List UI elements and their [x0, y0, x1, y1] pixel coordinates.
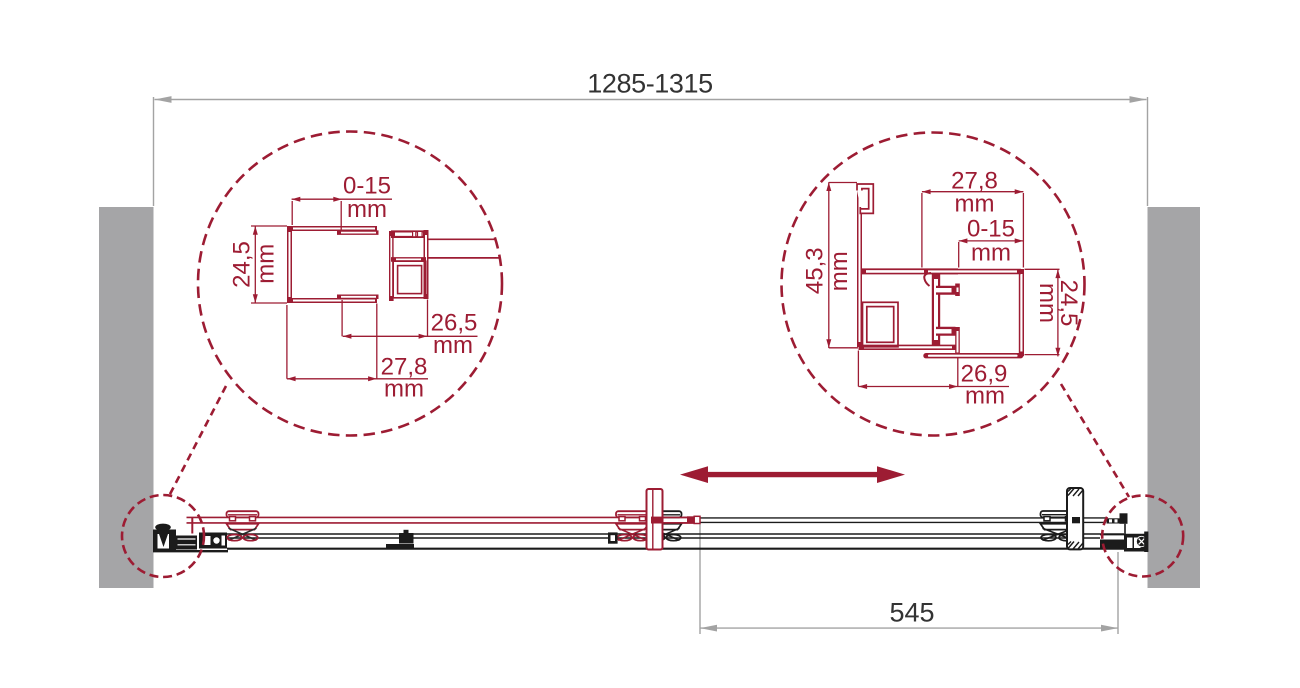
svg-text:24,5: 24,5 [1055, 280, 1082, 327]
svg-text:mm: mm [955, 191, 995, 218]
svg-text:24,5: 24,5 [229, 241, 256, 288]
svg-text:mm: mm [971, 240, 1011, 267]
svg-text:mm: mm [433, 332, 473, 359]
svg-text:45,3: 45,3 [802, 247, 829, 294]
svg-text:mm: mm [347, 196, 387, 223]
svg-text:mm: mm [384, 376, 424, 403]
svg-text:mm: mm [826, 251, 853, 291]
svg-text:mm: mm [965, 383, 1005, 410]
svg-text:0-15: 0-15 [967, 216, 1015, 243]
svg-text:1285-1315: 1285-1315 [587, 69, 713, 99]
svg-text:mm: mm [253, 244, 280, 284]
svg-text:545: 545 [889, 597, 934, 627]
